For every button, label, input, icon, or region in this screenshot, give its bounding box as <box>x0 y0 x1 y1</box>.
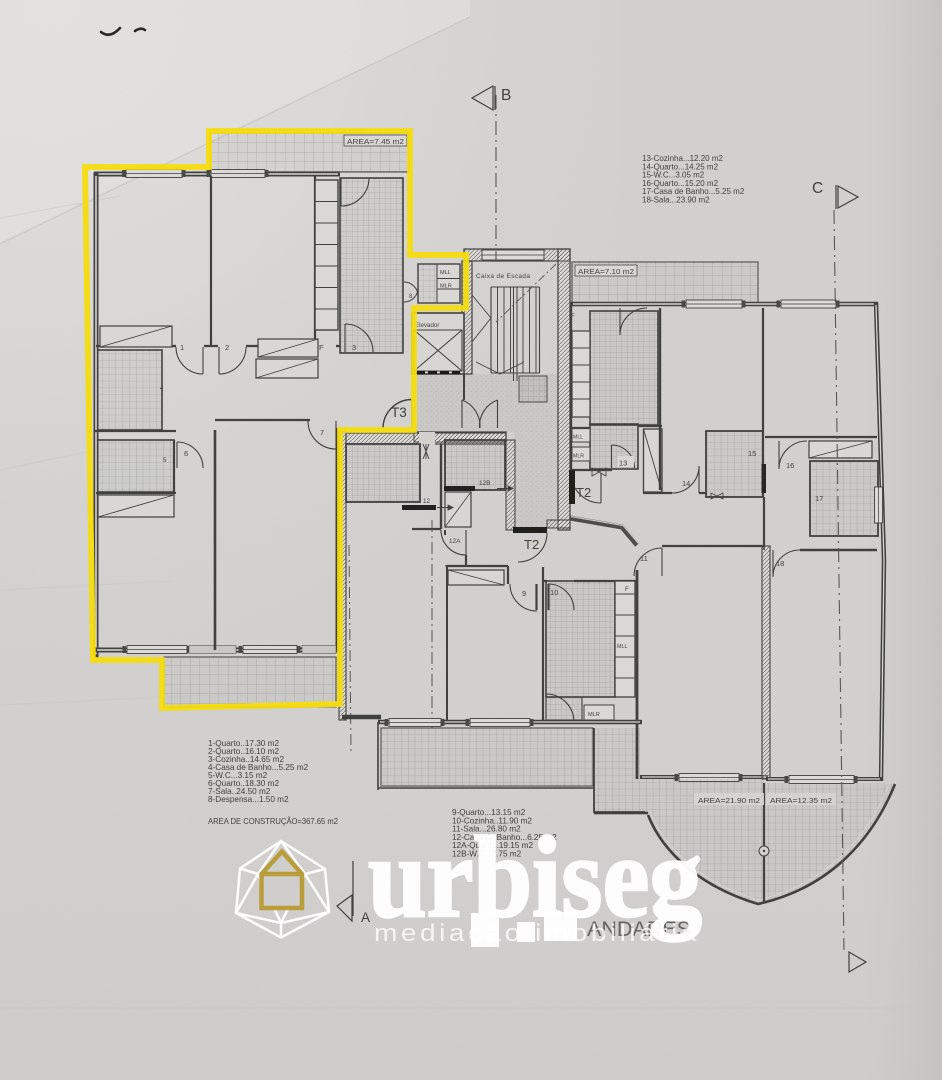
svg-text:mediação imobiliária: mediação imobiliária <box>374 920 700 947</box>
